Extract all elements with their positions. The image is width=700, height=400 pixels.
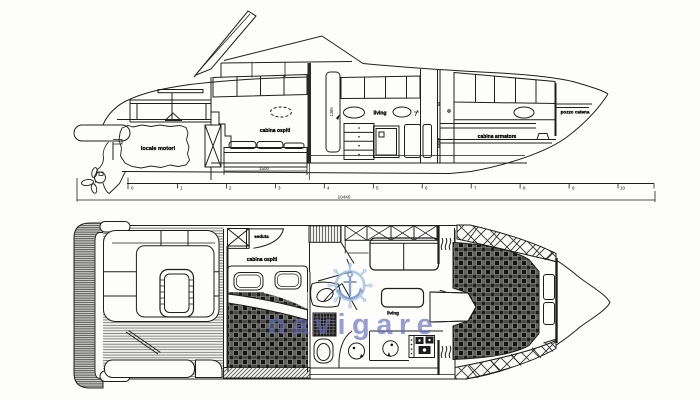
svg-text:seduta: seduta: [254, 234, 269, 239]
svg-text:navigare: navigare: [268, 309, 439, 341]
svg-text:1500: 1500: [259, 166, 270, 171]
svg-text:pozzo catena: pozzo catena: [561, 110, 590, 115]
svg-text:10: 10: [620, 186, 626, 191]
svg-text:cabina ospiti: cabina ospiti: [247, 257, 278, 263]
svg-text:living: living: [373, 111, 386, 117]
svg-text:cabina ospiti: cabina ospiti: [260, 128, 291, 134]
svg-text:cabina armatore: cabina armatore: [478, 134, 517, 140]
svg-text:1385: 1385: [329, 107, 334, 117]
svg-text:locale motori: locale motori: [141, 146, 176, 152]
svg-text:10440: 10440: [338, 195, 351, 200]
